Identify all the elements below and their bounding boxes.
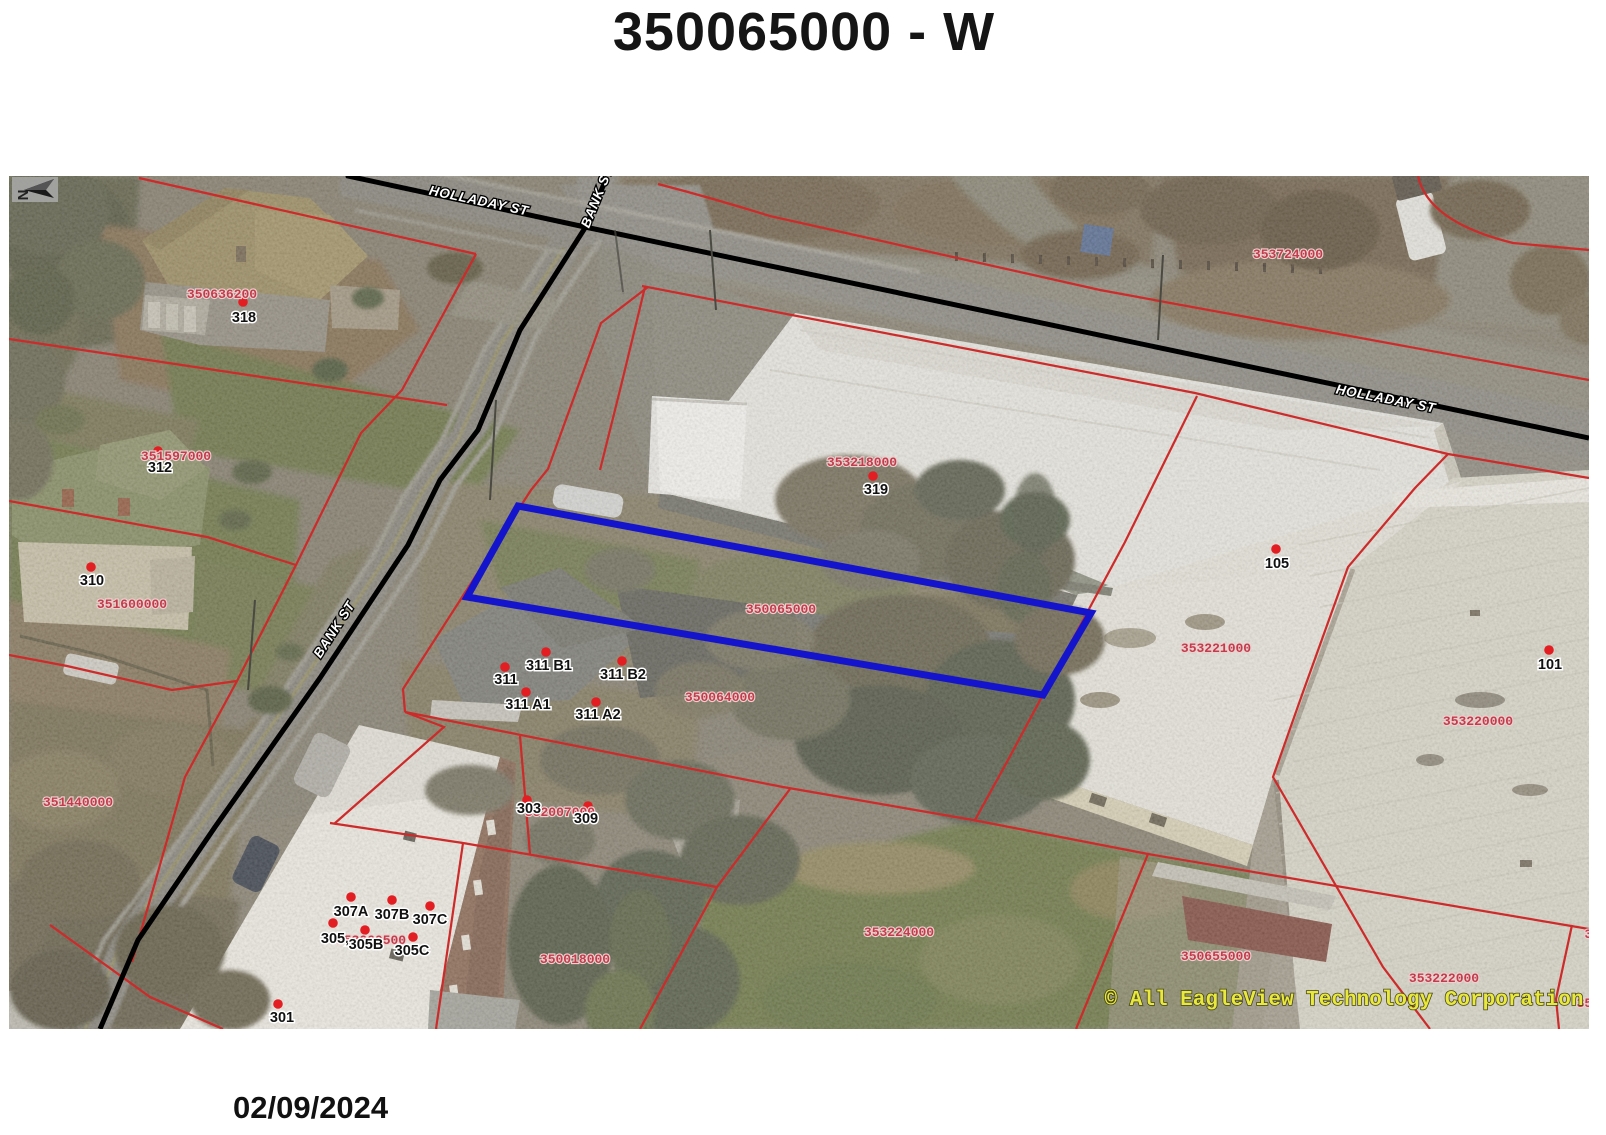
svg-text:350636200: 350636200	[187, 287, 257, 302]
svg-text:© All EagleView Technology Cor: © All EagleView Technology Corporation	[1105, 989, 1584, 1012]
svg-text:311 B2: 311 B2	[600, 667, 646, 683]
svg-text:350065000: 350065000	[746, 602, 816, 617]
svg-text:350018000: 350018000	[540, 952, 610, 967]
svg-text:305C: 305C	[395, 943, 430, 959]
svg-text:101: 101	[1538, 657, 1562, 673]
svg-text:350065000 - W: 350065000 - W	[613, 2, 995, 62]
svg-text:311: 311	[494, 672, 517, 688]
svg-text:319: 319	[864, 482, 888, 498]
svg-text:305,: 305,	[321, 931, 349, 947]
svg-text:105: 105	[1265, 556, 1289, 572]
svg-text:353222000: 353222000	[1409, 971, 1479, 986]
svg-text:318: 318	[232, 310, 256, 326]
svg-text:353221000: 353221000	[1181, 641, 1251, 656]
svg-text:307A: 307A	[334, 904, 369, 920]
svg-text:353224000: 353224000	[864, 925, 934, 940]
svg-text:307C: 307C	[413, 912, 448, 928]
svg-text:303: 303	[517, 801, 541, 817]
svg-text:311 A1: 311 A1	[505, 697, 550, 713]
svg-text:305B: 305B	[349, 937, 384, 953]
svg-text:309: 309	[574, 811, 598, 827]
svg-text:310: 310	[80, 573, 104, 589]
svg-text:312: 312	[148, 460, 172, 476]
svg-text:350655000: 350655000	[1181, 949, 1251, 964]
svg-text:311 B1: 311 B1	[526, 658, 572, 674]
svg-text:301: 301	[270, 1010, 294, 1026]
svg-text:353220000: 353220000	[1443, 714, 1513, 729]
svg-text:353724000: 353724000	[1253, 247, 1323, 262]
svg-text:02/09/2024: 02/09/2024	[233, 1090, 389, 1125]
svg-text:351440000: 351440000	[43, 795, 113, 810]
svg-text:353218000: 353218000	[827, 455, 897, 470]
svg-text:307B: 307B	[375, 907, 410, 923]
svg-text:350064000: 350064000	[685, 690, 755, 705]
svg-text:311 A2: 311 A2	[575, 707, 620, 723]
svg-text:351600000: 351600000	[97, 597, 167, 612]
